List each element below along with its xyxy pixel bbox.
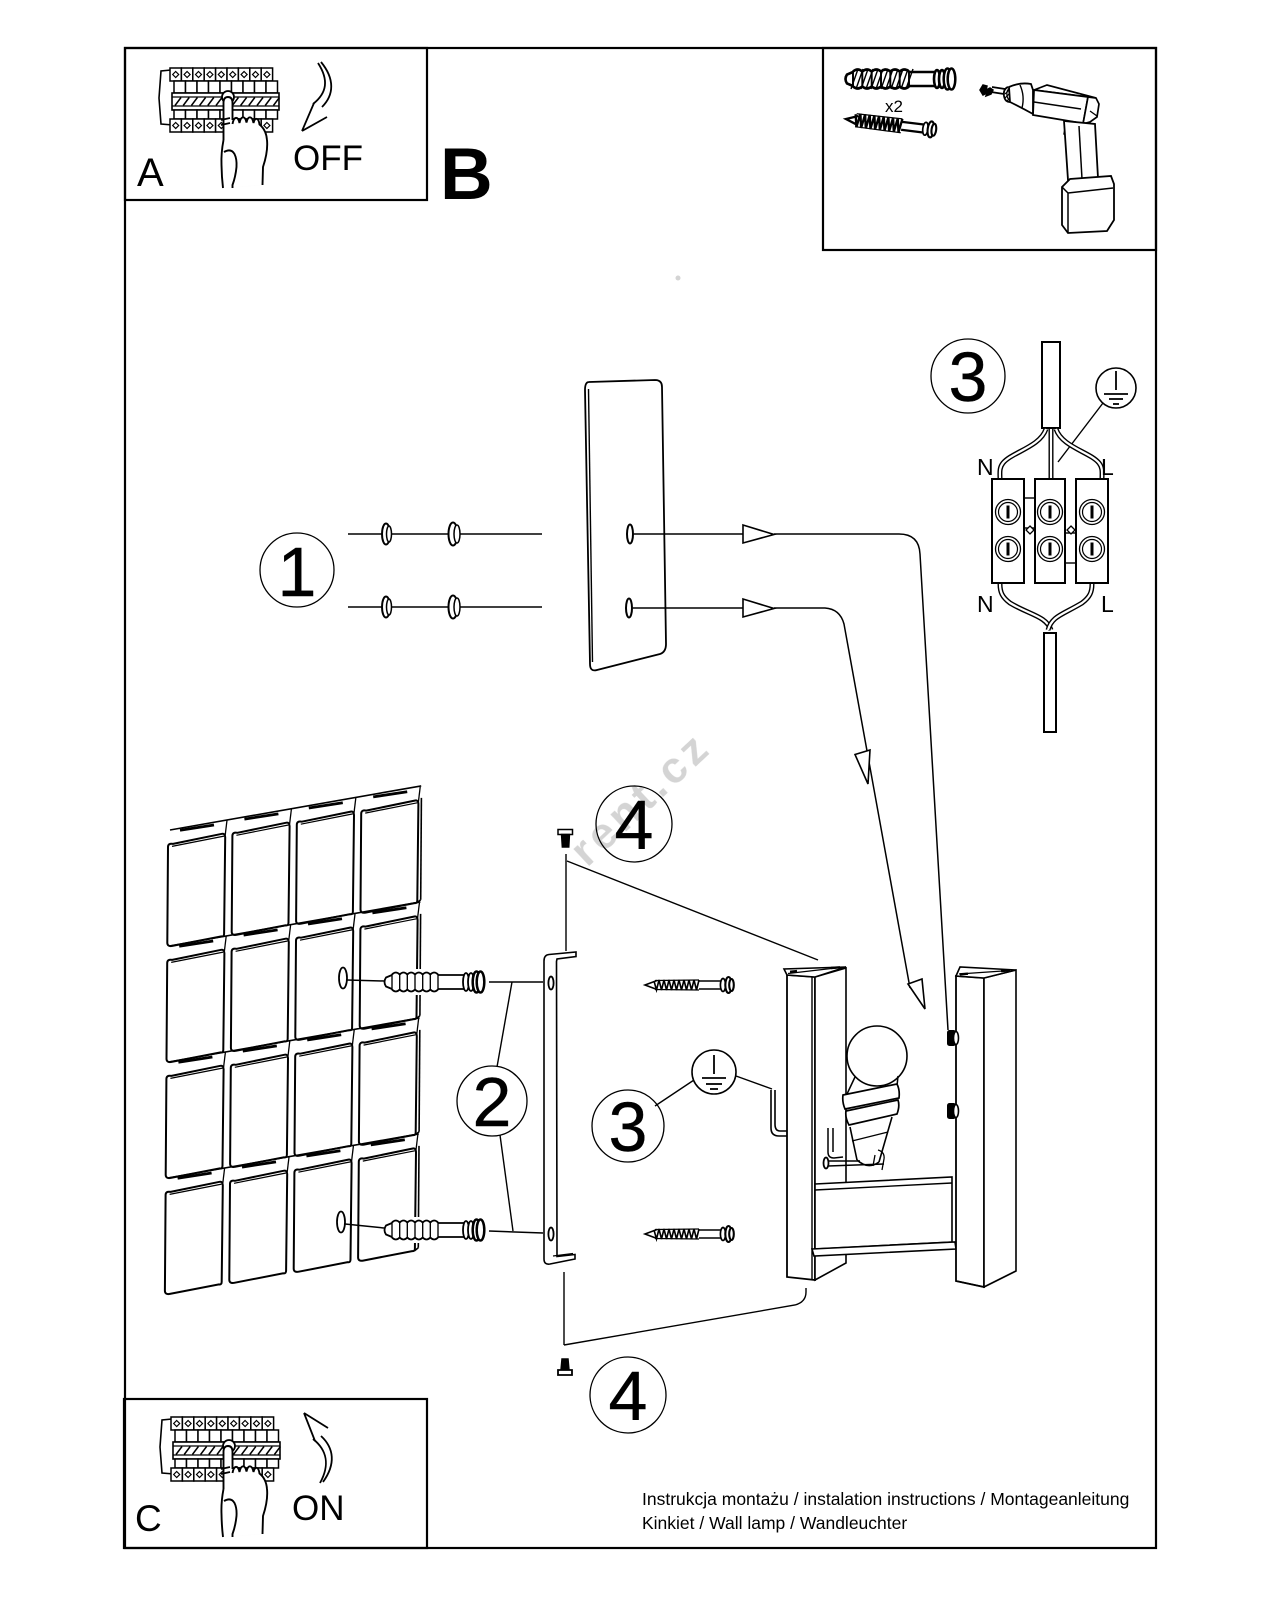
- svg-text:N: N: [977, 591, 994, 617]
- svg-text:3: 3: [949, 338, 988, 416]
- svg-text:A: A: [137, 151, 164, 195]
- svg-text:C: C: [135, 1498, 162, 1539]
- svg-text:Instrukcja montażu / instalati: Instrukcja montażu / instalation instruc…: [642, 1489, 1129, 1509]
- svg-text:L: L: [1101, 454, 1114, 480]
- svg-text:3: 3: [609, 1088, 648, 1166]
- svg-text:N: N: [977, 454, 994, 480]
- svg-text:L: L: [1101, 591, 1114, 617]
- svg-text:ON: ON: [292, 1489, 345, 1528]
- svg-text:OFF: OFF: [293, 139, 363, 178]
- svg-text:Kinkiet / Wall lamp / Wandleuc: Kinkiet / Wall lamp / Wandleuchter: [642, 1513, 907, 1533]
- svg-text:1: 1: [278, 533, 317, 611]
- svg-text:2: 2: [473, 1063, 512, 1141]
- svg-text:4: 4: [609, 1357, 648, 1435]
- svg-text:x2: x2: [885, 97, 903, 116]
- svg-text:B: B: [440, 134, 493, 215]
